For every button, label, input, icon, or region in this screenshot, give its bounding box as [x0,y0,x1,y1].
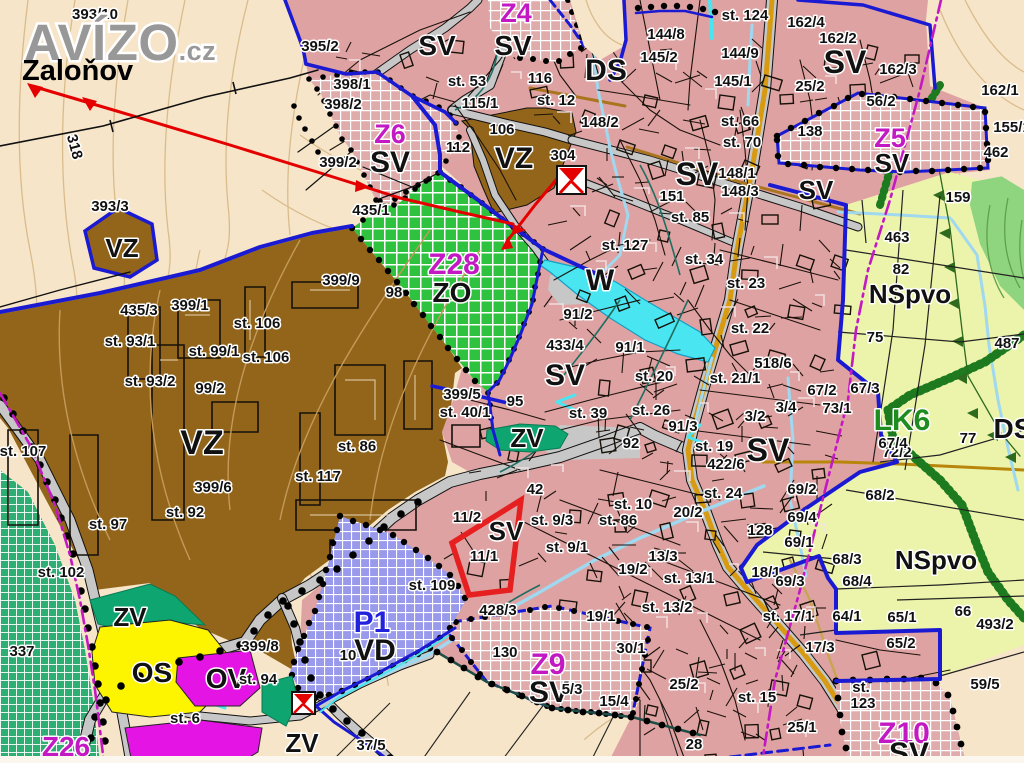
svg-text:st. 40/1: st. 40/1 [440,404,491,421]
svg-text:st. 6: st. 6 [170,710,200,727]
svg-text:st. 94: st. 94 [239,671,278,688]
svg-text:77: 77 [960,430,977,447]
svg-text:393/3: 393/3 [91,198,129,215]
svg-text:64/1: 64/1 [832,608,861,625]
svg-text:75: 75 [867,329,884,346]
svg-text:106: 106 [489,121,514,138]
svg-text:144/8: 144/8 [647,26,685,43]
svg-text:SV: SV [370,146,410,179]
svg-text:25/2: 25/2 [669,676,698,693]
svg-text:145/1: 145/1 [714,73,752,90]
svg-text:25/1: 25/1 [787,719,816,736]
svg-text:66: 66 [955,603,972,620]
svg-text:3/4: 3/4 [776,399,798,416]
svg-text:82: 82 [893,261,910,278]
svg-text:st. 22: st. 22 [731,320,769,337]
svg-text:91/1: 91/1 [615,339,644,356]
svg-text:162/2: 162/2 [819,30,857,47]
svg-text:st. 99/1: st. 99/1 [189,343,240,360]
svg-text:487: 487 [994,335,1019,352]
svg-text:11/2: 11/2 [453,509,481,526]
svg-text:ZO: ZO [433,277,472,308]
svg-text:428/3: 428/3 [479,602,517,619]
svg-text:98: 98 [386,284,403,301]
svg-text:399/2: 399/2 [319,154,357,171]
svg-text:st. 93/1: st. 93/1 [105,333,156,350]
svg-text:25/2: 25/2 [795,78,824,95]
svg-text:st. 106: st. 106 [234,315,281,332]
svg-text:SV: SV [824,44,867,80]
svg-text:398/1: 398/1 [333,76,371,93]
svg-text:st. 20: st. 20 [635,368,673,385]
svg-text:28: 28 [686,736,703,753]
svg-text:13/3: 13/3 [648,548,677,565]
svg-text:st. 124: st. 124 [722,7,769,24]
svg-text:162/4: 162/4 [787,14,825,31]
svg-text:SV: SV [799,175,834,205]
svg-text:st. 85: st. 85 [671,209,709,226]
svg-text:59/5: 59/5 [970,676,999,693]
svg-text:67/4: 67/4 [878,435,908,452]
svg-text:SV: SV [494,30,532,61]
svg-text:st. 21/1: st. 21/1 [710,370,761,387]
svg-text:Zaloňov: Zaloňov [22,55,133,87]
svg-text:st. 15: st. 15 [738,689,776,706]
svg-text:67/2: 67/2 [807,382,836,399]
svg-text:95: 95 [507,393,524,410]
svg-text:LK6: LK6 [874,404,931,437]
svg-text:NSpvo: NSpvo [895,545,977,575]
svg-text:30/1: 30/1 [616,640,645,657]
svg-text:123: 123 [850,695,875,712]
svg-text:st.: st. [852,679,870,696]
svg-text:69/3: 69/3 [775,573,804,590]
svg-text:116: 116 [528,70,552,87]
svg-text:148/1: 148/1 [718,165,756,182]
svg-text:5/3: 5/3 [562,681,583,698]
svg-text:399/5: 399/5 [443,386,481,403]
svg-text:SV: SV [489,516,524,546]
svg-text:Z6: Z6 [374,119,406,149]
svg-text:435/1: 435/1 [352,202,390,219]
svg-text:DS: DS [994,413,1024,444]
svg-text:91/3: 91/3 [668,418,697,435]
svg-text:337: 337 [9,643,34,660]
svg-text:69/2: 69/2 [787,481,816,498]
svg-text:399/1: 399/1 [171,297,209,314]
svg-text:st. 13/2: st. 13/2 [642,599,693,616]
svg-text:151: 151 [659,188,684,205]
svg-text:73/1: 73/1 [822,400,851,417]
svg-text:99/2: 99/2 [195,380,224,397]
svg-text:st. 53: st. 53 [448,73,486,90]
svg-text:435/3: 435/3 [120,302,158,319]
svg-text:OS: OS [132,657,172,688]
svg-text:144/9: 144/9 [721,45,759,62]
svg-text:130: 130 [492,644,517,661]
svg-text:st. 70: st. 70 [723,134,761,151]
svg-text:398/2: 398/2 [324,96,362,113]
svg-text:st. 17/1: st. 17/1 [763,608,814,625]
svg-text:st. 106: st. 106 [243,349,290,366]
svg-text:VZ: VZ [105,233,138,263]
svg-text:20/2: 20/2 [673,504,702,521]
svg-text:42: 42 [527,481,544,498]
svg-text:Z4: Z4 [500,0,532,28]
svg-text:st. 9/3: st. 9/3 [531,512,574,529]
svg-text:W: W [586,264,615,297]
svg-text:st. 86: st. 86 [338,438,376,455]
svg-text:st. 13/1: st. 13/1 [664,570,715,587]
svg-text:68/2: 68/2 [865,487,894,504]
svg-text:399/9: 399/9 [322,272,360,289]
svg-text:ZV: ZV [285,728,319,758]
svg-text:DS: DS [585,54,627,87]
svg-text:st. 10: st. 10 [614,496,652,513]
svg-text:68/3: 68/3 [832,551,861,568]
svg-text:162/3: 162/3 [879,61,917,78]
svg-text:st. 102: st. 102 [38,564,85,581]
svg-text:st. 23: st. 23 [727,275,765,292]
svg-text:st. 26: st. 26 [632,402,670,419]
svg-text:304: 304 [550,147,576,164]
svg-text:ZV: ZV [113,602,147,632]
svg-text:VZ: VZ [495,142,533,175]
svg-text:st. 107: st. 107 [0,443,46,460]
svg-text:155/1: 155/1 [993,119,1024,136]
svg-text:148/3: 148/3 [721,183,759,200]
svg-text:st. 97: st. 97 [89,516,127,533]
svg-text:st. 19: st. 19 [695,438,733,455]
svg-text:st. 93/2: st. 93/2 [125,373,176,390]
svg-text:37/5: 37/5 [356,737,385,754]
svg-text:395/2: 395/2 [301,38,339,55]
svg-text:VZ: VZ [180,424,223,462]
svg-text:ZV: ZV [510,423,544,453]
svg-text:493/2: 493/2 [976,616,1014,633]
svg-text:162/1: 162/1 [981,82,1019,99]
svg-text:433/4: 433/4 [546,337,584,354]
svg-text:159: 159 [945,189,970,206]
svg-text:145/2: 145/2 [640,49,678,66]
svg-text:st. 34: st. 34 [685,251,724,268]
svg-text:17/3: 17/3 [805,639,834,656]
svg-text:st. 9/1: st. 9/1 [546,539,589,556]
svg-text:VD: VD [354,634,396,667]
svg-text:st. 66: st. 66 [721,113,759,130]
svg-text:st. 12: st. 12 [537,92,575,109]
svg-text:st. 39: st. 39 [569,405,607,422]
svg-text:112: 112 [446,139,470,156]
svg-text:65/2: 65/2 [886,635,915,652]
svg-text:69/1: 69/1 [784,534,813,551]
svg-text:3/2: 3/2 [745,408,766,425]
svg-text:56/2: 56/2 [866,93,895,110]
svg-text:148/2: 148/2 [581,114,619,131]
svg-text:138: 138 [797,123,822,140]
svg-text:422/6: 422/6 [707,456,745,473]
svg-text:st. 86: st. 86 [599,512,637,529]
svg-text:st. 24: st. 24 [704,485,743,502]
svg-text:91/2: 91/2 [563,306,592,323]
svg-text:SV: SV [418,30,456,61]
svg-text:463: 463 [884,229,909,246]
svg-text:69/4: 69/4 [787,509,817,526]
svg-text:462: 462 [983,144,1008,161]
svg-text:st. 109: st. 109 [409,577,456,594]
svg-text:NSpvo: NSpvo [869,279,951,309]
svg-text:SV: SV [545,359,585,392]
svg-text:SV: SV [875,148,910,178]
svg-text:92: 92 [623,435,640,452]
svg-text:SV: SV [676,156,719,192]
svg-text:68/4: 68/4 [842,573,872,590]
svg-text:st. 92: st. 92 [166,504,204,521]
svg-text:st. 117: st. 117 [295,468,341,485]
svg-text:65/1: 65/1 [887,609,916,626]
svg-text:11/1: 11/1 [470,548,498,565]
svg-text:SV: SV [747,432,790,468]
svg-text:67/3: 67/3 [850,380,879,397]
svg-text:19/1: 19/1 [586,608,615,625]
svg-text:15/4: 15/4 [599,693,629,710]
svg-text:115/1: 115/1 [462,95,499,112]
svg-text:10: 10 [340,647,357,664]
svg-text:19/2: 19/2 [618,561,647,578]
svg-text:399/8: 399/8 [241,638,279,655]
svg-text:399/6: 399/6 [194,479,232,496]
svg-text:128: 128 [747,522,772,539]
svg-text:st. 127: st. 127 [602,237,649,254]
